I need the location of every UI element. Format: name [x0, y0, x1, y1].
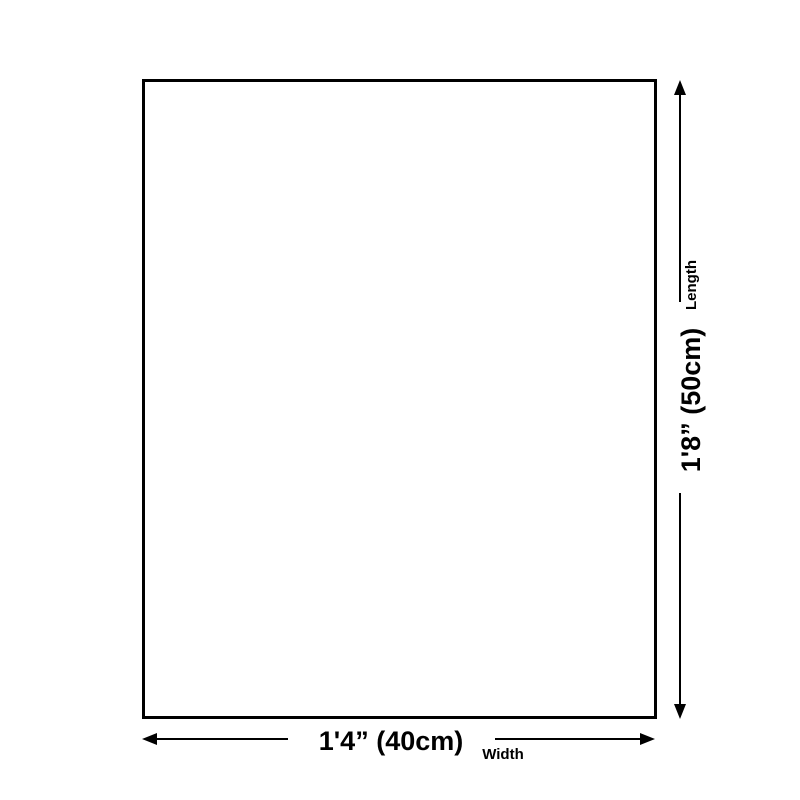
width-label: Width: [463, 745, 543, 765]
product-outline: [142, 79, 657, 719]
width-arrow-line-right: [495, 738, 641, 740]
length-arrow-line-top: [679, 93, 681, 302]
length-arrow-line-bottom: [679, 493, 681, 706]
length-value: 1'8” (50cm): [676, 320, 706, 480]
length-label: Length: [682, 245, 702, 325]
arrow-down-icon: [674, 704, 686, 719]
width-arrow-line-left: [155, 738, 288, 740]
dimension-diagram: Length 1'8” (50cm) 1'4” (40cm) Width: [0, 0, 800, 800]
arrow-right-icon: [640, 733, 655, 745]
